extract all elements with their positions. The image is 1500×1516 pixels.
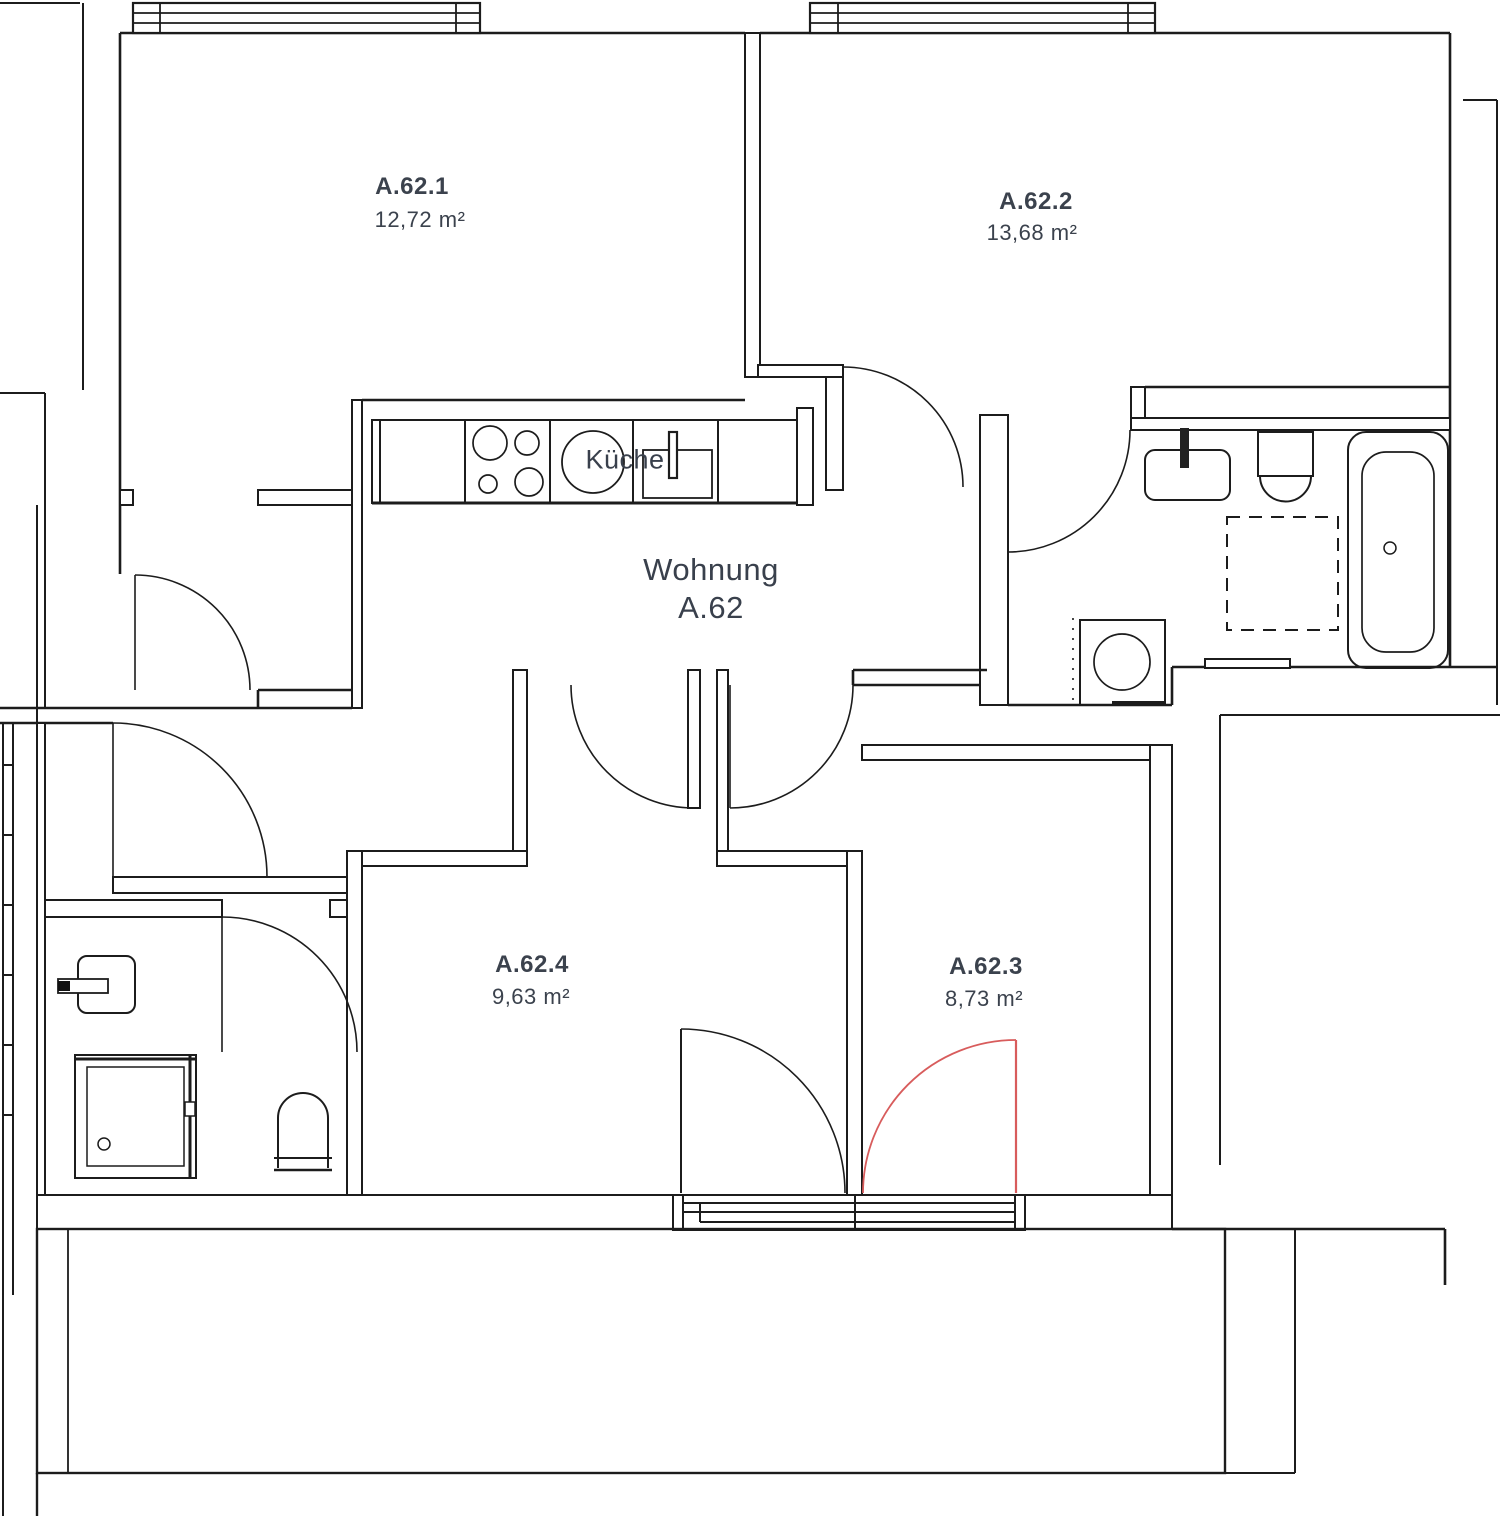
door-threshold [1205,659,1290,668]
apartment-title-line1: Wohnung [643,552,779,588]
room-area-a62-4: 9,63 m² [492,984,570,1010]
room-label-a62-2: A.62.2 [999,188,1073,216]
room-area-a62-1: 12,72 m² [375,207,466,233]
bathroom-1 [1073,428,1448,705]
red-door-swing-icon [863,1040,1016,1193]
room-label-a62-3: A.62.3 [949,953,1023,981]
floorplan-page: A.62.1 12,72 m² A.62.2 13,68 m² A.62.3 8… [0,0,1500,1516]
bathroom-2 [58,956,332,1178]
room-label-a62-1: A.62.1 [375,173,449,201]
balcony-window [673,1195,1025,1230]
kitchen-label: Küche [585,445,664,476]
shower-area-dashed [1227,517,1338,630]
room-area-a62-2: 13,68 m² [987,220,1078,246]
room-label-a62-4: A.62.4 [495,951,569,979]
bathtub-icon [1348,432,1448,668]
wash-basin-icon [1145,428,1230,500]
apartment-title-line2: A.62 [678,590,744,626]
washing-machine-icon [1073,618,1165,705]
wash-basin-icon [58,956,135,1013]
shower-icon [75,1055,196,1178]
window-icon [133,3,1155,33]
room-area-a62-3: 8,73 m² [945,986,1023,1012]
balcony [37,1229,1295,1516]
toilet-icon [1258,432,1313,502]
floorplan-drawing [0,0,1500,1516]
toilet-icon [274,1093,332,1170]
